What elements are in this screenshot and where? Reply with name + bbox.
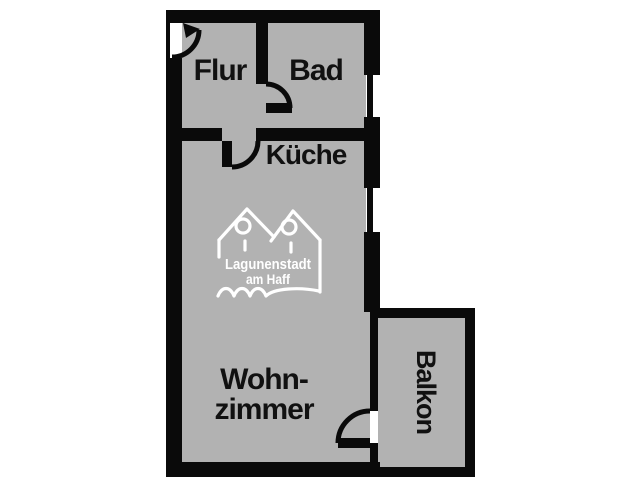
wall-top <box>166 10 380 23</box>
room-label-bad: Bad <box>289 54 343 87</box>
wall-right-pier-3 <box>364 232 380 312</box>
room-label-wohnzimmer-line2: zimmer <box>214 393 314 426</box>
wall-bottom <box>166 462 380 477</box>
wall-right-below-balcony-door <box>370 443 378 462</box>
balcony-wall-right <box>465 308 475 477</box>
window-bad <box>367 75 373 117</box>
wall-right-pier-1 <box>364 10 380 75</box>
wall-flur-kueche <box>182 128 222 141</box>
room-label-flur: Flur <box>194 54 248 87</box>
window-kueche <box>367 188 373 232</box>
wall-right-pier-2 <box>364 117 380 188</box>
wall-right-lower <box>370 312 378 411</box>
balcony-door-leaf <box>338 438 370 448</box>
room-label-wohnzimmer-line1: Wohn- <box>220 363 308 396</box>
balcony-wall-bottom <box>380 467 475 477</box>
wall-flur-bad-divider <box>256 23 268 84</box>
kueche-door-leaf <box>222 141 232 167</box>
logo-text-line2: am Haff <box>246 271 290 287</box>
room-label-kueche: Küche <box>266 139 347 170</box>
entrance-threshold-line <box>166 23 170 58</box>
wall-left <box>166 58 182 477</box>
floorplan-page: Lagunenstadt am Haff Flur Bad Küche Wohn… <box>0 0 640 480</box>
room-label-balkon: Balkon <box>411 350 441 434</box>
floorplan-drawing: Lagunenstadt am Haff Flur Bad Küche Wohn… <box>0 0 640 480</box>
balcony-wall-top <box>378 308 475 318</box>
